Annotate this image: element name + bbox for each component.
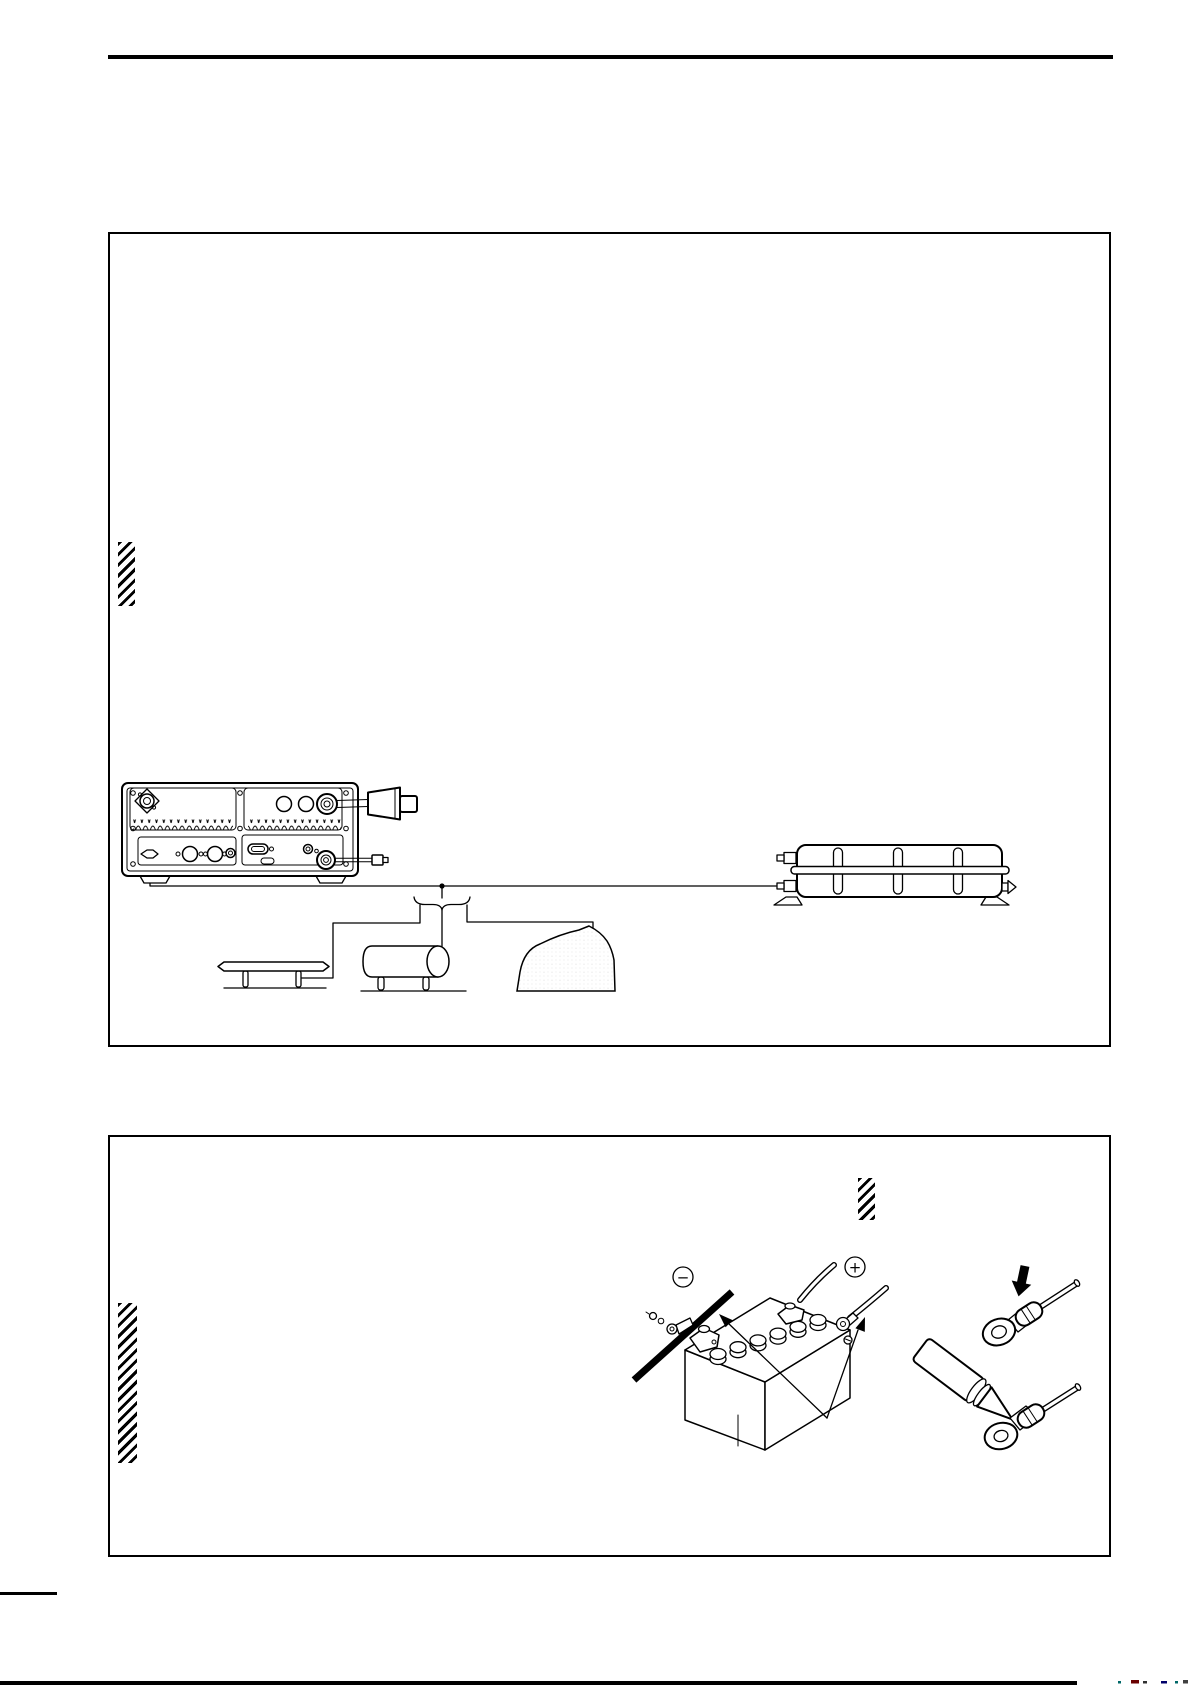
footer-mark bbox=[1183, 1680, 1188, 1684]
dc-power-socket-icon bbox=[317, 794, 337, 814]
crimp-ring-terminal-icon bbox=[979, 1264, 1081, 1350]
terminal-screw-icon bbox=[646, 1312, 664, 1324]
tuner-foot-icon bbox=[981, 897, 1009, 905]
key-jack-icon bbox=[317, 851, 335, 869]
note-hatch-marker-1 bbox=[118, 542, 135, 606]
battery-figure: − + bbox=[620, 1250, 930, 1465]
footer-mark bbox=[1118, 1681, 1121, 1684]
svg-text:+: + bbox=[849, 1259, 862, 1277]
tuner-connector-icon bbox=[777, 853, 796, 864]
svg-text:−: − bbox=[677, 1269, 690, 1287]
footer-mark bbox=[1143, 1681, 1147, 1684]
battery-icon bbox=[685, 1298, 850, 1450]
grounding-figure bbox=[120, 780, 1020, 1012]
tuner-connector-icon bbox=[777, 881, 796, 892]
radio-foot-icon bbox=[316, 876, 346, 883]
transceiver-rear-panel-icon bbox=[122, 783, 417, 883]
tuner-antenna-post-icon bbox=[1002, 881, 1016, 894]
positive-symbol: + bbox=[845, 1257, 865, 1277]
footer-mark bbox=[1161, 1681, 1167, 1684]
top-rule bbox=[108, 55, 1113, 59]
footer-mark bbox=[1175, 1681, 1178, 1684]
terminal-figure bbox=[930, 1258, 1095, 1463]
water-pipe-icon bbox=[361, 946, 466, 991]
antenna-tuner-icon bbox=[774, 845, 1016, 905]
under-brace bbox=[414, 897, 470, 910]
note-hatch-marker-3 bbox=[118, 1303, 137, 1463]
manual-page: − + bbox=[0, 0, 1192, 1685]
tuner-foot-icon bbox=[774, 897, 802, 905]
jack-icon bbox=[299, 797, 314, 812]
press-arrow-icon bbox=[1009, 1264, 1035, 1298]
bottom-rule bbox=[0, 1681, 1077, 1685]
page-tab-rule bbox=[0, 1592, 57, 1595]
footer-mark bbox=[1131, 1680, 1139, 1684]
negative-symbol: − bbox=[673, 1267, 693, 1287]
radio-foot-icon bbox=[140, 876, 170, 883]
footer-marks bbox=[1110, 1677, 1192, 1685]
note-hatch-marker-2 bbox=[858, 1178, 875, 1220]
solder-ring-terminal-icon bbox=[912, 1337, 1082, 1453]
earth-mound-icon bbox=[517, 926, 615, 991]
ground-plate-icon bbox=[218, 962, 329, 988]
jack-icon bbox=[277, 797, 292, 812]
